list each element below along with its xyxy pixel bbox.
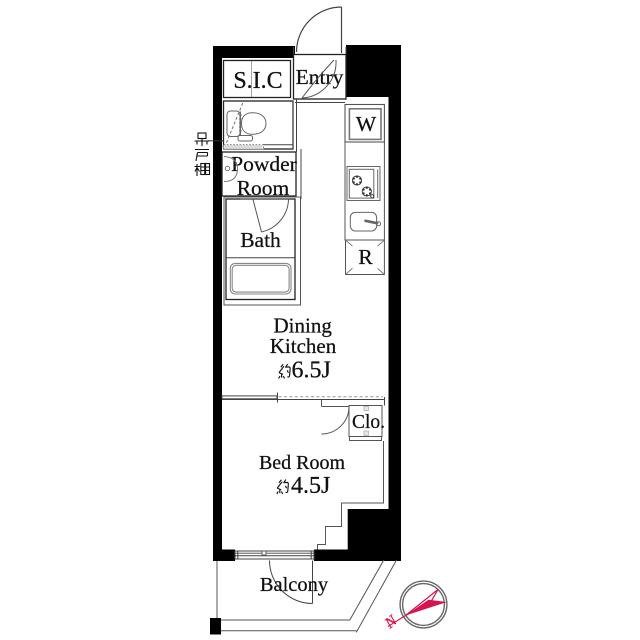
- svg-text:Entry: Entry: [296, 65, 344, 89]
- svg-text:Bath: Bath: [240, 228, 281, 252]
- svg-text:S.I.C: S.I.C: [233, 68, 282, 94]
- svg-text:Powder: Powder: [231, 152, 297, 176]
- svg-text:Clo.: Clo.: [352, 412, 385, 433]
- svg-text:Kitchen: Kitchen: [270, 334, 337, 358]
- svg-text:Room: Room: [237, 176, 290, 200]
- svg-text:Bed Room: Bed Room: [259, 452, 346, 474]
- svg-text:R: R: [358, 245, 373, 269]
- svg-text:W: W: [356, 112, 377, 136]
- svg-text:Balcony: Balcony: [260, 574, 329, 596]
- svg-text:6.5J: 6.5J: [292, 358, 331, 384]
- svg-text:4.5J: 4.5J: [291, 473, 330, 499]
